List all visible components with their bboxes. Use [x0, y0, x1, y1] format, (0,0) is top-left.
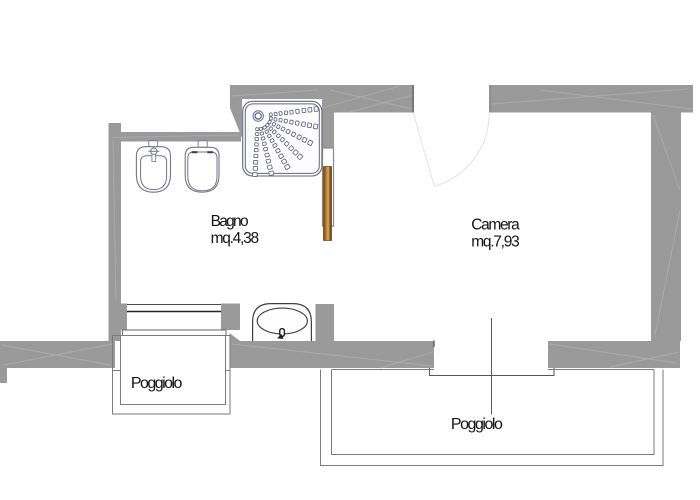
- svg-text:Poggiolo: Poggiolo: [131, 375, 183, 392]
- svg-text:Poggiolo: Poggiolo: [451, 416, 503, 433]
- svg-text:mq.4,38: mq.4,38: [211, 230, 260, 247]
- svg-text:Bagno: Bagno: [211, 213, 249, 230]
- svg-text:Camera: Camera: [471, 216, 520, 233]
- svg-text:mq.7,93: mq.7,93: [471, 233, 520, 250]
